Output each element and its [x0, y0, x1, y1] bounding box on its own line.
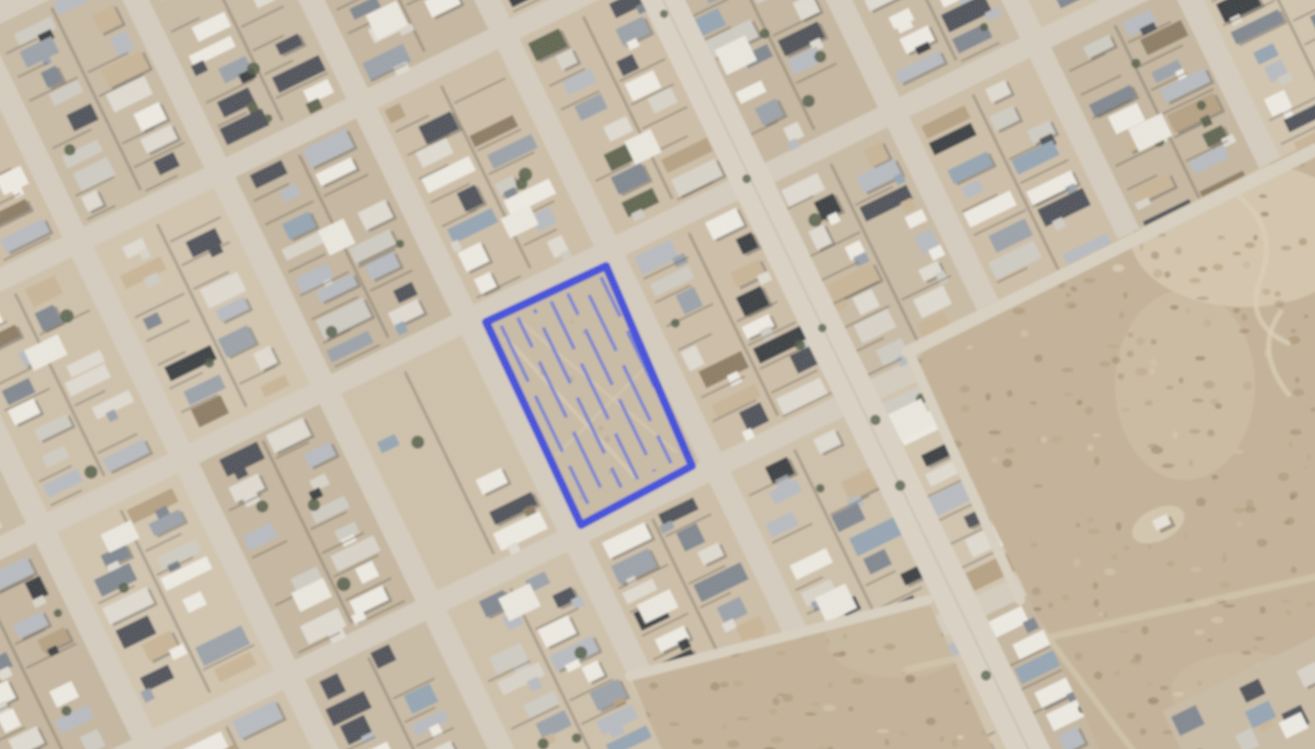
satellite-map[interactable]	[0, 0, 1315, 749]
color-tint-overlay	[0, 0, 1315, 749]
screenshot-root	[0, 0, 1315, 749]
